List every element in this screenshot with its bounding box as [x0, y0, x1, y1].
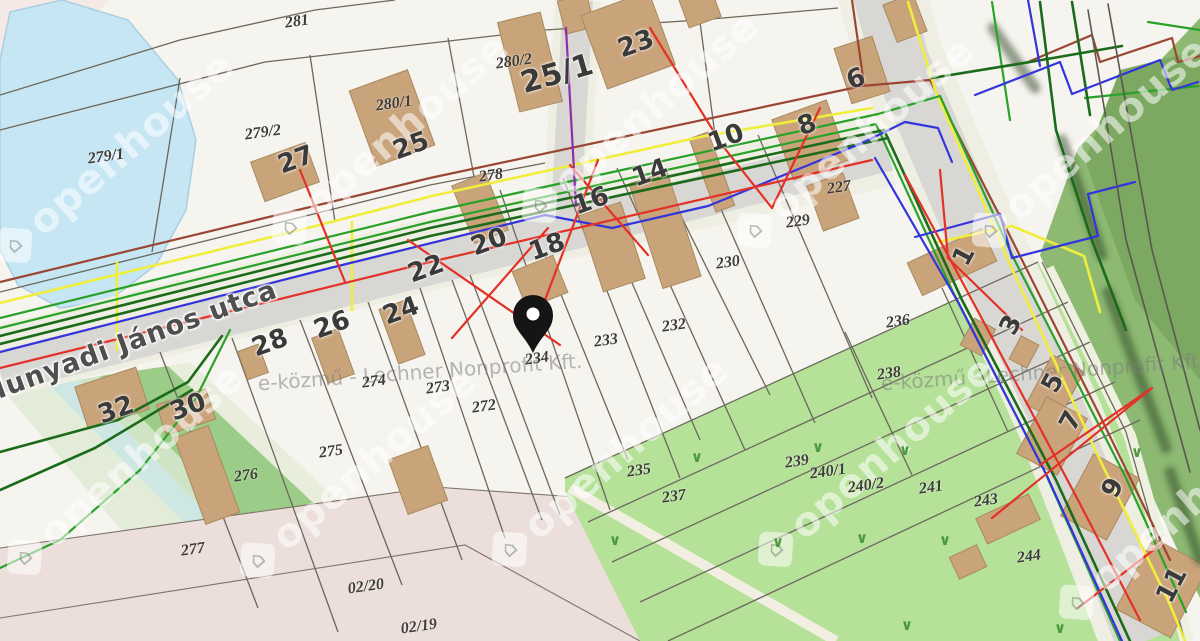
- grass-symbol-icon: ∨: [1054, 619, 1066, 637]
- pin-hole: [527, 308, 540, 321]
- grass-symbol-icon: ∨: [812, 438, 824, 456]
- grass-symbol-icon: ∨: [691, 448, 703, 466]
- cadastral-map-canvas: e-közmű - Lechner Nonprofit Kft.e-közmű …: [0, 0, 1200, 641]
- grass-symbol-icon: ∨: [772, 533, 784, 551]
- grass-symbol-icon: ∨: [901, 616, 913, 634]
- grass-symbol-icon: ∨: [1131, 443, 1143, 461]
- grass-symbol-icon: ∨: [939, 531, 951, 549]
- grass-symbol-icon: ∨: [899, 441, 911, 459]
- grass-symbol-icon: ∨: [856, 529, 868, 547]
- grass-symbol-icon: ∨: [609, 531, 621, 549]
